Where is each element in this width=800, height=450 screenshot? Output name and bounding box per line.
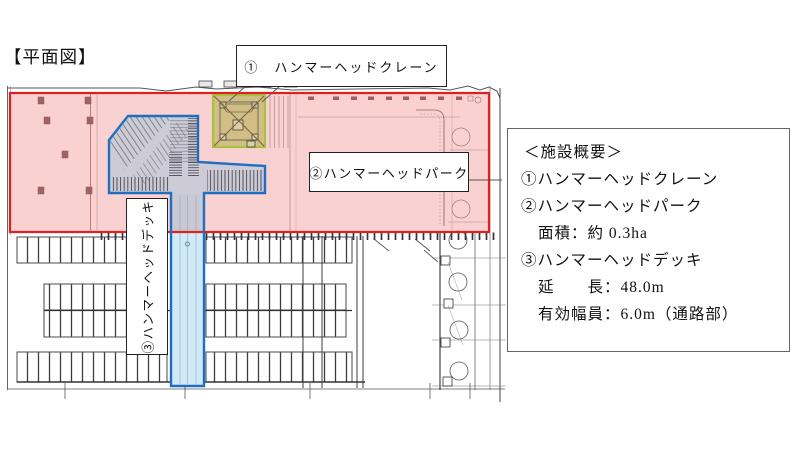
park-label-text: ②ハンマーヘッドパーク [309, 163, 469, 182]
overview-heading: ＜施設概要＞ [521, 139, 781, 166]
overview-line: ②ハンマーヘッドパーク [521, 193, 781, 220]
facility-overview-box: ＜施設概要＞ ①ハンマーヘッドクレーン ②ハンマーヘッドパーク 面積：約 0.3… [507, 128, 790, 352]
overview-line: 有効幅員：6.0m（通路部） [521, 301, 781, 328]
overview-line: ③ハンマーヘッドデッキ [521, 247, 781, 274]
deck-label-box: ③ハンマーヘッドデッキ [126, 198, 168, 355]
overview-line: 延 長：48.0m [521, 274, 781, 301]
overview-line: ①ハンマーヘッドクレーン [521, 166, 781, 193]
overview-line: 面積：約 0.3ha [521, 220, 781, 247]
deck-label-text: ③ハンマーヘッドデッキ [138, 199, 157, 353]
site-plan-page: 【平面図】 ① ハンマーヘッドクレーン ②ハンマーヘッドパーク ③ハンマーヘッド… [0, 0, 800, 450]
crane-footprint [213, 95, 265, 147]
crane-label-text: ① ハンマーヘッドクレーン [244, 57, 438, 76]
page-title: 【平面図】 [4, 44, 97, 69]
crane-label-box: ① ハンマーヘッドクレーン [236, 45, 447, 87]
park-label-box: ②ハンマーヘッドパーク [309, 152, 469, 192]
